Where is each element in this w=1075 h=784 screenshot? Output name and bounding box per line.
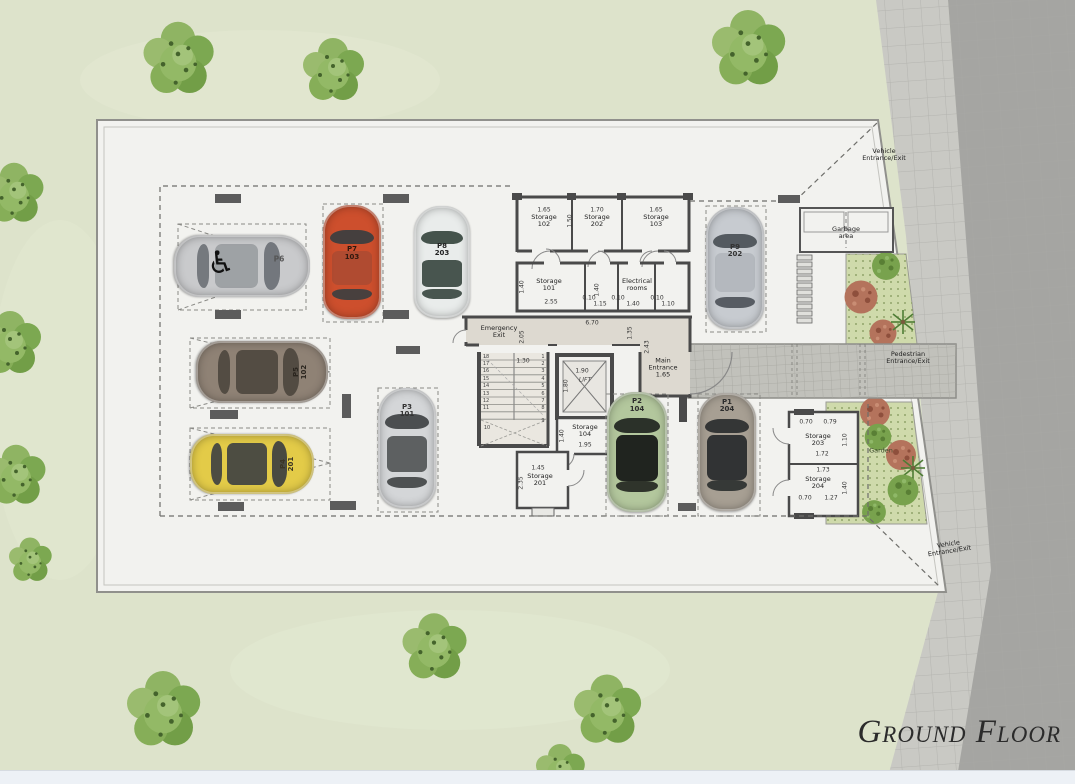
wall-stubs — [679, 396, 687, 422]
page-title: Ground Floor — [857, 714, 1061, 751]
site-plan-drawing — [0, 0, 1075, 784]
bush — [872, 252, 900, 280]
bottom-bar — [0, 770, 1075, 784]
floor-plan-page: P7103P8203P9202P5102P4201P3101P2104P1204… — [0, 0, 1075, 784]
staircase — [479, 352, 549, 446]
elevator — [557, 355, 612, 418]
